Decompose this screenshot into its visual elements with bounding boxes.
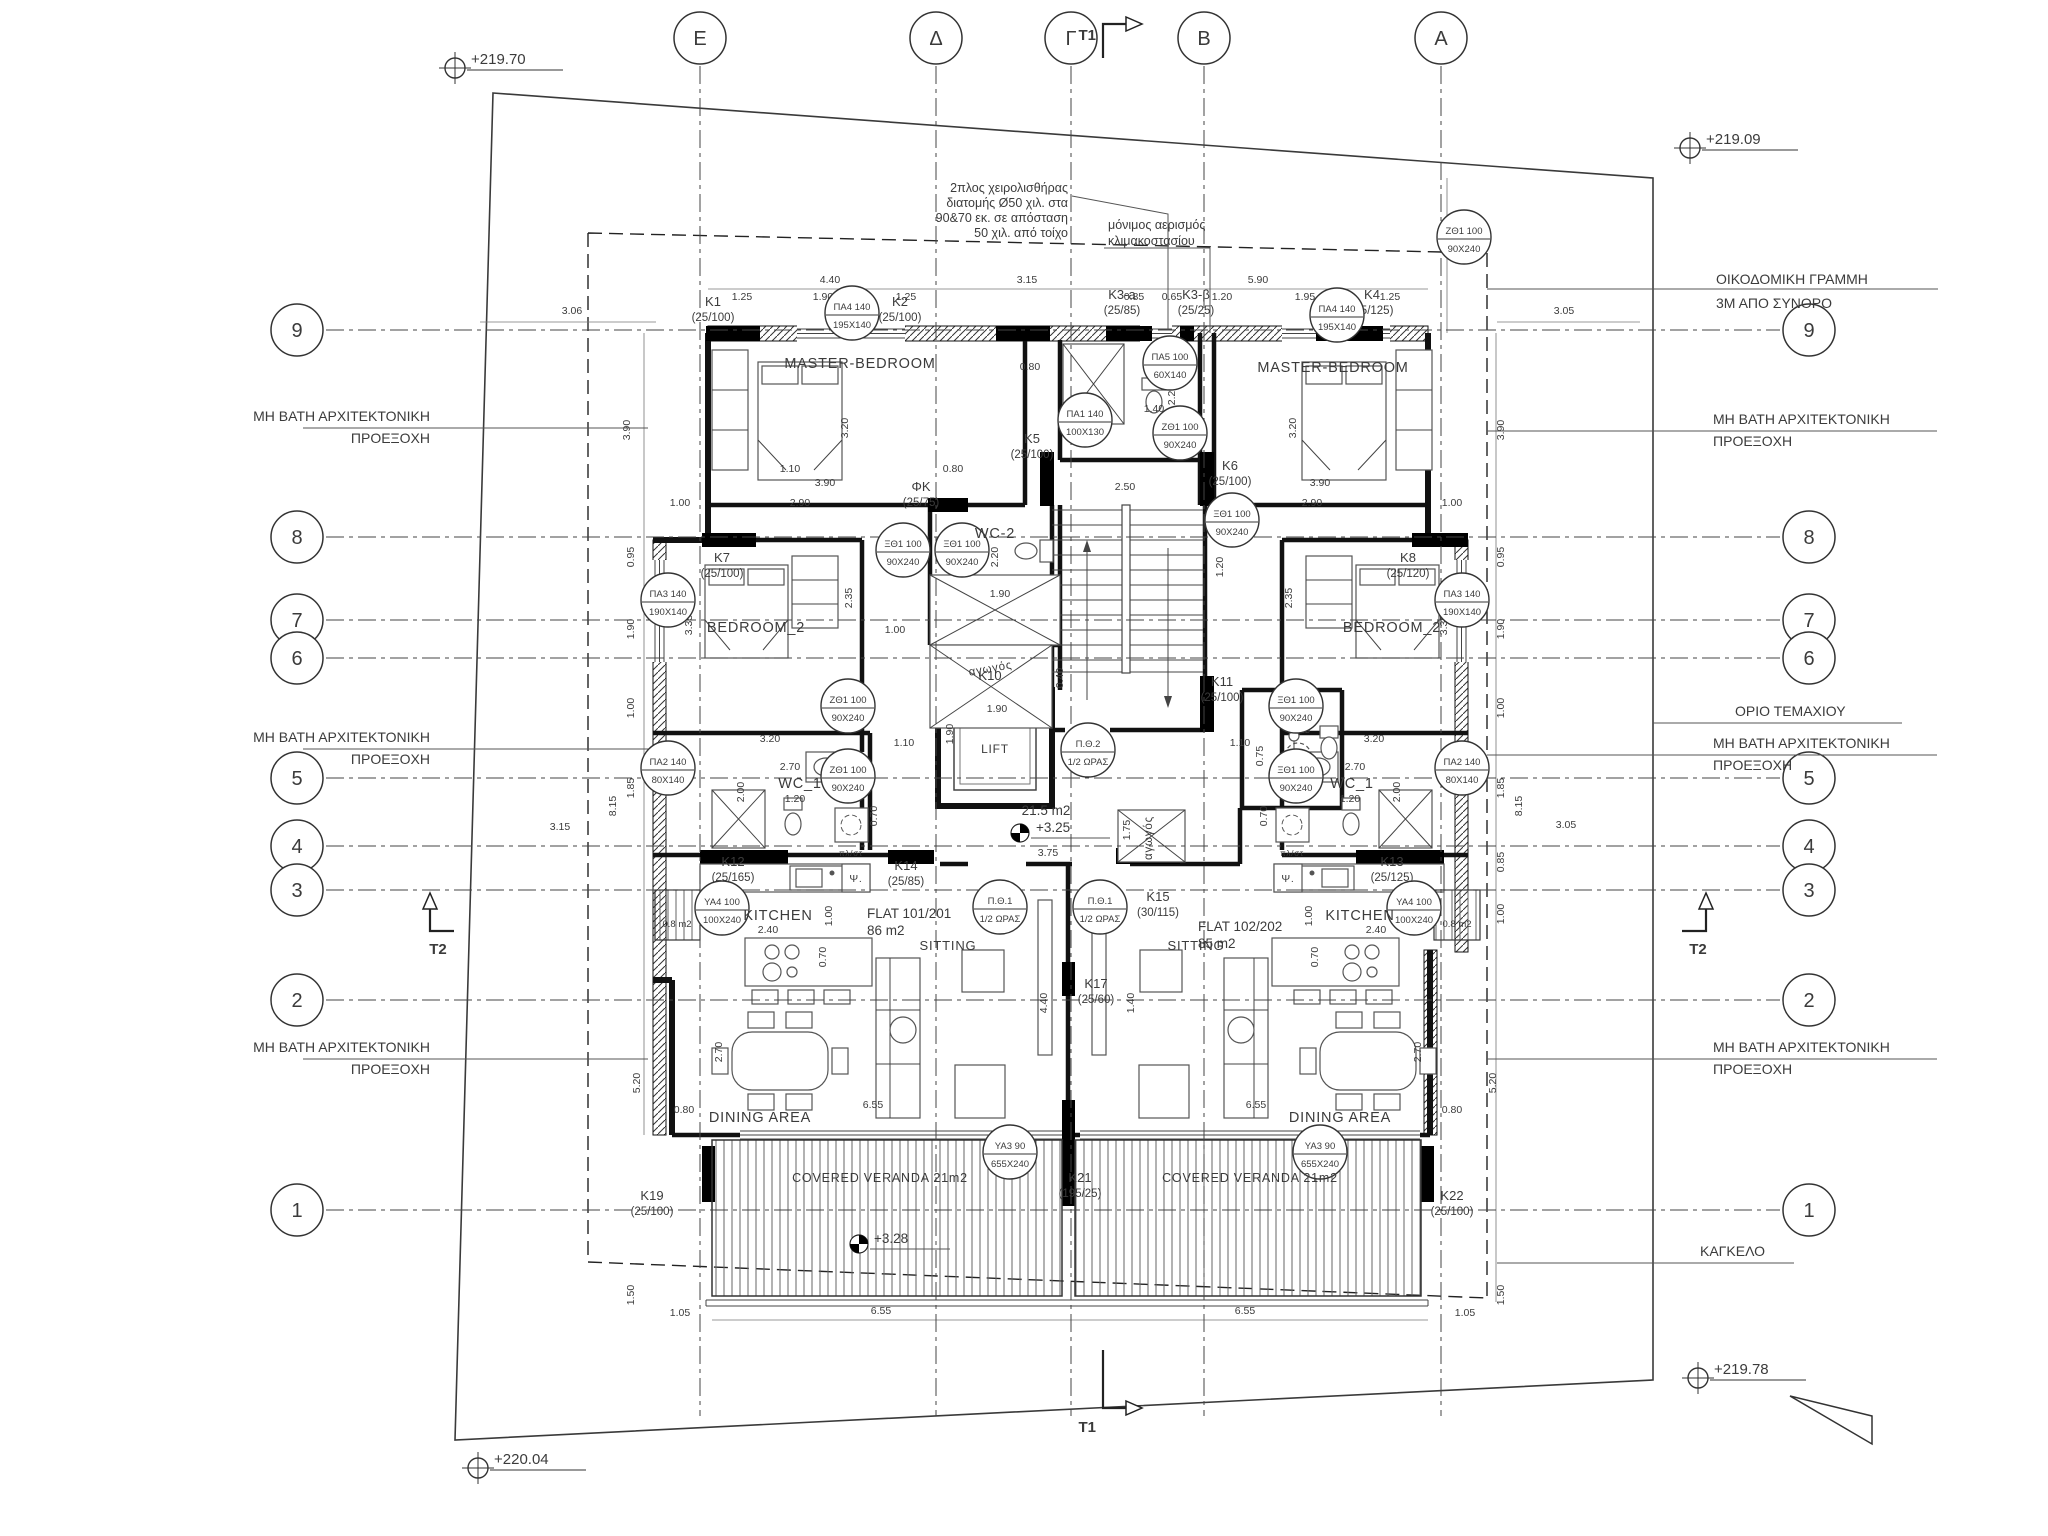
dimension-text: 3.15 xyxy=(1017,274,1038,286)
notes: 2πλος χειρολισθήρας διατομής Ø50 χιλ. στ… xyxy=(936,181,1868,1259)
dimension-text: 0.80 xyxy=(1020,361,1041,373)
dimension-text: 3.90 xyxy=(621,420,633,441)
opening-tag-code: Π.Θ.1 xyxy=(1088,896,1113,907)
opening-tag-circle xyxy=(641,741,695,795)
dimension-text: 1.20 xyxy=(1214,557,1226,578)
room-label: SITTING xyxy=(920,938,977,953)
opening-tag-code: ΞΘ1 100 xyxy=(884,539,921,550)
elevation-value: +220.04 xyxy=(494,1451,549,1468)
column-size: (30/115) xyxy=(1137,907,1179,919)
railing-label: ΚΑΓΚΕΛΟ xyxy=(1700,1243,1765,1259)
opening-tag-code: ΠΑ5 100 xyxy=(1152,352,1189,363)
dimension-text: 3.90 xyxy=(1495,420,1507,441)
column-id: K8 xyxy=(1400,550,1416,565)
opening-tag-circle xyxy=(821,749,875,803)
grid-bubble-label: B xyxy=(1197,28,1210,50)
opening-tag-size: 90X240 xyxy=(832,713,865,724)
dimension-text: 2.35 xyxy=(1283,588,1295,609)
benchmark-cross xyxy=(462,1452,494,1484)
grid-bubble-label: 4 xyxy=(291,836,302,858)
opening-tag-code: ΖΘ1 100 xyxy=(830,765,867,776)
dimension-text: 1.90 xyxy=(990,588,1011,600)
opening-tag-size: 90X240 xyxy=(1280,713,1313,724)
dimension-text: 6.55 xyxy=(1235,1305,1256,1317)
column-id: K21 xyxy=(1068,1170,1091,1185)
section-t1-bottom: T1 xyxy=(1078,1419,1096,1436)
opening-tag-code: ΠΑ3 140 xyxy=(650,589,687,600)
dimension-text: 1.00 xyxy=(885,624,906,636)
living-furniture xyxy=(712,900,1436,1118)
grid-bubble-label: 2 xyxy=(291,990,302,1012)
opening-tag-circle xyxy=(1269,749,1323,803)
room-label: DINING AREA xyxy=(1289,1110,1391,1126)
opening-tag-size: 90X240 xyxy=(1448,244,1481,255)
column-id: K11 xyxy=(1211,674,1233,689)
dimension-text: 0.95 xyxy=(625,547,637,568)
opening-tag-size: 80X140 xyxy=(652,775,685,786)
north-pointer xyxy=(1790,1396,1872,1444)
washer-label: πλ/στ xyxy=(839,849,863,858)
grid-bubble-label: Γ xyxy=(1065,28,1076,50)
dimension-text: 2.70 xyxy=(1412,1042,1424,1063)
dimension-text: 0.95 xyxy=(1495,547,1507,568)
room-label: KITCHEN xyxy=(1325,908,1394,924)
room-label: BEDROOM_2 xyxy=(1343,620,1441,636)
opening-tag-circle xyxy=(1143,336,1197,390)
dimension-text: 3.05 xyxy=(1554,305,1575,317)
opening-tag-code: ΠΑ1 140 xyxy=(1067,409,1104,420)
grid-bubble-label: 7 xyxy=(291,610,302,632)
column-size: (195/25) xyxy=(1059,1188,1102,1200)
grid-bubble-label: Δ xyxy=(929,28,942,50)
opening-tag-size: 90X240 xyxy=(1216,527,1249,538)
dimension-text: 3.20 xyxy=(1287,418,1299,439)
projection-note-line2: ΠΡΟΕΞΟΧΗ xyxy=(351,1061,430,1077)
opening-tag-size: 90X240 xyxy=(1164,440,1197,451)
dimension-text: 3.20 xyxy=(760,733,781,745)
grid-bubble-label: 5 xyxy=(291,768,302,790)
section-t1-top: T1 xyxy=(1078,27,1096,44)
projection-note-line1: ΜΗ ΒΑΤΗ ΑΡΧΙΤΕΚΤΟΝΙΚΗ xyxy=(253,1039,430,1055)
dimension-text: 5.20 xyxy=(1487,1073,1499,1094)
dimension-text: 3.15 xyxy=(550,821,571,833)
room-label: COVERED VERANDA 21m2 xyxy=(1162,1171,1338,1185)
opening-tag-circle xyxy=(821,679,875,733)
grid-bubble-label: 8 xyxy=(1803,527,1814,549)
dimension-text: 6.55 xyxy=(1246,1099,1267,1111)
projection-note-line2: ΠΡΟΕΞΟΧΗ xyxy=(351,751,430,767)
room-label: MASTER-BEDROOM xyxy=(1257,360,1408,376)
room-label: MASTER-BEDROOM xyxy=(784,356,935,372)
vent-note: μόνιμος αερισμός xyxy=(1108,218,1205,232)
dimension-text: 1.00 xyxy=(1495,904,1507,925)
opening-tag-size: 90X240 xyxy=(887,557,920,568)
duct-label: αγωγός xyxy=(1143,816,1155,860)
grid-bubble-label: 1 xyxy=(1803,1200,1814,1222)
column-id: K2 xyxy=(892,294,908,309)
handrail-note: 90&70 εκ. σε απόσταση xyxy=(936,211,1068,225)
room-label: LIFT xyxy=(981,742,1009,756)
dimension-text: 1.00 xyxy=(625,698,637,719)
dimension-text: 1.00 xyxy=(823,906,835,927)
dimension-text: 2.00 xyxy=(735,782,747,803)
opening-tag-code: ΠΑ2 140 xyxy=(1444,757,1481,768)
dimension-text: 0.65 xyxy=(1162,291,1183,303)
opening-tag-size: 1/2 ΩΡΑΣ xyxy=(1080,914,1121,925)
fridge-label: Ψ. xyxy=(1281,873,1294,885)
dimension-text: 3.05 xyxy=(1556,819,1577,831)
dimension-text: 3.20 xyxy=(1364,733,1385,745)
opening-tag-circle xyxy=(1061,723,1115,777)
projection-note-line2: ΠΡΟΕΞΟΧΗ xyxy=(351,430,430,446)
dimension-text: 1.10 xyxy=(1230,737,1251,749)
opening-tag-size: 1/2 ΩΡΑΣ xyxy=(1068,757,1109,768)
shaft-area: 0.8 m2 xyxy=(1442,919,1471,930)
hall-level: +3.25 xyxy=(1036,820,1070,835)
room-label: WC_1 xyxy=(1330,776,1374,792)
opening-tag-size: 190X140 xyxy=(1443,607,1481,618)
opening-tag-circle xyxy=(973,880,1027,934)
opening-tag-size: 80X140 xyxy=(1446,775,1479,786)
washer-label: πλ/στ xyxy=(1280,849,1304,858)
projection-note-line1: ΜΗ ΒΑΤΗ ΑΡΧΙΤΕΚΤΟΝΙΚΗ xyxy=(1713,411,1890,427)
column-size: (25/85) xyxy=(888,876,925,888)
dimension-text: 1.20 xyxy=(785,793,806,805)
grid-bubble-label: 5 xyxy=(1803,768,1814,790)
opening-tag-circle xyxy=(1435,741,1489,795)
opening-tag-size: 100X240 xyxy=(1395,915,1433,926)
floor-plan-drawing: EΔΓBA998877665544332211 +219.70+219.09+2… xyxy=(0,0,2048,1536)
section-t2-left: T2 xyxy=(429,941,447,958)
dimension-text: 1.00 xyxy=(670,497,691,509)
column-size: (25/75) xyxy=(903,497,940,509)
grid-bubble-label: 7 xyxy=(1803,610,1814,632)
building-line-label: 3Μ ΑΠΟ ΣΥΝΟΡΟ xyxy=(1716,295,1832,311)
grid-bubble-label: 3 xyxy=(291,880,302,902)
opening-tag-code: ΞΘ1 100 xyxy=(1213,509,1250,520)
dimension-text: 0.80 xyxy=(674,1104,695,1116)
column-id: K7 xyxy=(714,550,730,565)
shaft-area: 0.8 m2 xyxy=(662,919,691,930)
opening-tag-circle xyxy=(1437,210,1491,264)
dimension-text: 1.25 xyxy=(1380,291,1401,303)
dimension-text: 2.00 xyxy=(1391,782,1403,803)
opening-tag-circle xyxy=(1310,288,1364,342)
opening-tag-code: ΖΘ1 100 xyxy=(830,695,867,706)
grid-bubble-label: 2 xyxy=(1803,990,1814,1012)
dimension-text: 2.70 xyxy=(713,1042,725,1063)
floor-plan-sheet: EΔΓBA998877665544332211 +219.70+219.09+2… xyxy=(0,0,2048,1536)
column-size: (25/100) xyxy=(879,312,922,324)
veranda-level: +3.28 xyxy=(874,1231,908,1246)
room-label: WC-2 xyxy=(975,526,1015,542)
dimension-text: 3.75 xyxy=(1038,847,1059,859)
column-size: (25/85) xyxy=(1104,305,1141,317)
column-size: (25/120) xyxy=(1387,568,1430,580)
dimension-text: 6.55 xyxy=(863,1099,884,1111)
opening-tag-size: 1/2 ΩΡΑΣ xyxy=(980,914,1021,925)
grid-bubble-label: E xyxy=(693,28,706,50)
dimension-text: 1.50 xyxy=(625,1285,637,1306)
grid-bubble-label: 6 xyxy=(291,648,302,670)
dimension-text: 2.90 xyxy=(1302,497,1323,509)
column-id: K6 xyxy=(1222,458,1238,473)
dimension-text: 1.90 xyxy=(944,724,956,745)
opening-tag-code: ΖΘ1 100 xyxy=(1446,226,1483,237)
opening-tag-size: 90X240 xyxy=(1280,783,1313,794)
opening-tag-circle xyxy=(641,573,695,627)
dimension-text: 0.75 xyxy=(1254,746,1266,767)
column-id: K3-a xyxy=(1108,287,1136,302)
column-size: (25/100) xyxy=(1011,449,1054,461)
dimension-text: 1.20 xyxy=(1340,793,1361,805)
building-line-label: ΟΙΚΟΔΟΜΙΚΗ ΓΡΑΜΜΗ xyxy=(1716,271,1868,287)
opening-tag-circle xyxy=(695,881,749,935)
dimension-text: 0.70 xyxy=(817,947,829,968)
column-size: (25/100) xyxy=(1209,476,1252,488)
opening-tag-code: Π.Θ.1 xyxy=(988,896,1013,907)
dimension-text: 0.80 xyxy=(1442,1104,1463,1116)
opening-tag-code: ΞΘ1 100 xyxy=(1277,765,1314,776)
column-id: K3-β xyxy=(1182,287,1210,302)
dimension-text: 1.90 xyxy=(987,703,1008,715)
elevation-value: +219.09 xyxy=(1706,131,1761,148)
benchmark-cross xyxy=(439,52,471,84)
opening-tag-code: Π.Θ.2 xyxy=(1076,739,1101,750)
grid-bubble-label: 4 xyxy=(1803,836,1814,858)
column-size: (25/100) xyxy=(701,568,744,580)
opening-tag-circle xyxy=(1058,393,1112,447)
dimension-text: 8.15 xyxy=(607,796,619,817)
opening-tag-code: ΖΘ1 100 xyxy=(1162,422,1199,433)
room-label: DINING AREA xyxy=(709,1110,811,1126)
opening-tag-size: 655X240 xyxy=(1301,1159,1339,1170)
dimension-text: 1.90 xyxy=(625,619,637,640)
opening-tag-code: ΥΑ3 90 xyxy=(1305,1141,1335,1152)
dimension-text: 2.20 xyxy=(989,547,1001,568)
projection-note-line2: ΠΡΟΕΞΟΧΗ xyxy=(1713,1061,1792,1077)
column-size: (25/100) xyxy=(692,312,735,324)
grid-bubble-label: 9 xyxy=(291,320,302,342)
opening-tag-circle xyxy=(876,523,930,577)
opening-tag-code: ΠΑ2 140 xyxy=(650,757,687,768)
dimension-text: 5.90 xyxy=(1248,274,1269,286)
fridge-label: Ψ. xyxy=(849,873,862,885)
dimension-text: 0.70 xyxy=(1309,947,1321,968)
hall-area: 21.5 m2 xyxy=(1022,803,1071,818)
dimension-text: 1.75 xyxy=(1121,820,1133,841)
opening-tag-circle xyxy=(1153,406,1207,460)
dimension-text: 0.70 xyxy=(868,806,880,827)
dimension-text: 6.55 xyxy=(871,1305,892,1317)
column-size: (25/100) xyxy=(1431,1206,1474,1218)
dimension-text: 5.20 xyxy=(631,1073,643,1094)
opening-tag-size: 195X140 xyxy=(1318,322,1356,333)
dimension-text: 2.70 xyxy=(780,761,801,773)
section-t2-right: T2 xyxy=(1689,941,1707,958)
opening-tag-circle xyxy=(1205,493,1259,547)
column-id: K1 xyxy=(705,294,721,309)
room-label: WC_1 xyxy=(778,776,822,792)
benchmark-cross xyxy=(1682,1362,1714,1394)
opening-tag-size: 90X240 xyxy=(832,783,865,794)
dimension-text: 1.20 xyxy=(1212,291,1233,303)
opening-tag-code: ΥΑ3 90 xyxy=(995,1141,1025,1152)
opening-tag-size: 90X240 xyxy=(946,557,979,568)
opening-tag-code: ΠΑ3 140 xyxy=(1444,589,1481,600)
dimension-text: 8.15 xyxy=(1513,796,1525,817)
projection-note-line1: ΜΗ ΒΑΤΗ ΑΡΧΙΤΕΚΤΟΝΙΚΗ xyxy=(253,729,430,745)
opening-tag-circle xyxy=(1269,679,1323,733)
column-id: K13 xyxy=(1380,854,1403,869)
column-id: K15 xyxy=(1146,889,1169,904)
flat-name: FLAT 102/202 xyxy=(1198,919,1282,934)
column-size: (25/25) xyxy=(1178,305,1215,317)
dimension-text: 0.80 xyxy=(943,463,964,475)
dimension-text: 3.90 xyxy=(815,477,836,489)
handrail-note: 50 χιλ. από τοίχο xyxy=(974,226,1068,240)
dimension-text: 1.10 xyxy=(894,737,915,749)
projection-note-line1: ΜΗ ΒΑΤΗ ΑΡΧΙΤΕΚΤΟΝΙΚΗ xyxy=(253,408,430,424)
dimension-text: 1.85 xyxy=(1495,778,1507,799)
dimension-text: 3.20 xyxy=(839,418,851,439)
opening-tag-code: ΠΑ4 140 xyxy=(1319,304,1356,315)
grid-bubble-label: 1 xyxy=(291,1200,302,1222)
flat-area: 86 m2 xyxy=(867,923,905,938)
opening-tag-circle xyxy=(1387,881,1441,935)
projection-note-line2: ΠΡΟΕΞΟΧΗ xyxy=(1713,757,1792,773)
dimension-text: 0.40 xyxy=(1054,668,1066,689)
column-size: (25/60) xyxy=(1078,994,1115,1006)
opening-tag-circle xyxy=(983,1125,1037,1179)
dimension-text: 4.40 xyxy=(1038,993,1050,1014)
opening-tag-circle xyxy=(825,286,879,340)
column-id: K14 xyxy=(894,858,917,873)
plot-boundary-label: ΟΡΙΟ ΤΕΜΑΧΙΟΥ xyxy=(1735,703,1846,719)
dimension-text: 0.70 xyxy=(1258,806,1270,827)
dimension-text: 1.50 xyxy=(1495,1285,1507,1306)
elevation-value: +219.78 xyxy=(1714,1361,1769,1378)
grid-bubble-label: 9 xyxy=(1803,320,1814,342)
handrail-note: 2πλος χειρολισθήρας xyxy=(950,181,1068,195)
dimension-text: 2.70 xyxy=(1345,761,1366,773)
opening-tag-size: 100X240 xyxy=(703,915,741,926)
column-id: K12 xyxy=(721,854,744,869)
dimension-text: 1.85 xyxy=(625,778,637,799)
opening-tag-code: ΥΑ4 100 xyxy=(704,897,740,908)
opening-tag-code: ΞΘ1 100 xyxy=(1277,695,1314,706)
flat-name: FLAT 101/201 xyxy=(867,906,951,921)
dimension-text: 1.90 xyxy=(1495,619,1507,640)
projection-note-line1: ΜΗ ΒΑΤΗ ΑΡΧΙΤΕΚΤΟΝΙΚΗ xyxy=(1713,1039,1890,1055)
column-id: K19 xyxy=(640,1188,663,1203)
column-id: ΦΚ xyxy=(911,479,930,494)
column-id: K5 xyxy=(1024,431,1040,446)
dimension-text: 1.00 xyxy=(1442,497,1463,509)
room-label: KITCHEN xyxy=(743,908,812,924)
dimension-text: 3.90 xyxy=(1310,477,1331,489)
dimension-text: 2.90 xyxy=(790,497,811,509)
opening-tag-code: ΥΑ4 100 xyxy=(1396,897,1432,908)
dimension-text: 2.35 xyxy=(843,588,855,609)
grid-bubble-label: 8 xyxy=(291,527,302,549)
opening-tag-size: 195X140 xyxy=(833,320,871,331)
dimension-text: 4.40 xyxy=(820,274,841,286)
grid-bubble-label: A xyxy=(1434,28,1448,50)
dimension-text: 1.00 xyxy=(1303,906,1315,927)
dimension-text: 1.00 xyxy=(1495,698,1507,719)
opening-tag-size: 190X140 xyxy=(649,607,687,618)
column-id: K4 xyxy=(1364,287,1380,302)
opening-tag-circle xyxy=(1073,880,1127,934)
grid-bubble-label: 3 xyxy=(1803,880,1814,902)
dimension-text: 0.85 xyxy=(1495,852,1507,873)
dimension-text: 1.05 xyxy=(670,1307,691,1319)
grid-bubble-label: 6 xyxy=(1803,648,1814,670)
elevation-value: +219.70 xyxy=(471,51,526,68)
handrail-note: διατομής Ø50 χιλ. στα xyxy=(946,196,1068,210)
dimension-text: 1.10 xyxy=(780,463,801,475)
opening-tag-circle xyxy=(1435,573,1489,627)
dimension-text: 3.06 xyxy=(562,305,583,317)
vent-note: κλιμακοστασίου xyxy=(1108,234,1195,248)
opening-tag-size: 60X140 xyxy=(1154,370,1187,381)
projection-note-line2: ΠΡΟΕΞΟΧΗ xyxy=(1713,433,1792,449)
opening-tag-code: ΠΑ4 140 xyxy=(834,302,871,313)
stair xyxy=(1052,505,1203,708)
dimension-text: 1.25 xyxy=(732,291,753,303)
dimension-text: 2.40 xyxy=(758,924,779,936)
opening-tag-size: 100X130 xyxy=(1066,427,1104,438)
dimension-text: 1.95 xyxy=(1295,291,1316,303)
flat-area: 85 m2 xyxy=(1198,936,1236,951)
opening-tag-size: 655X240 xyxy=(991,1159,1029,1170)
column-size: (25/100) xyxy=(631,1206,674,1218)
dimension-text: 1.40 xyxy=(1125,993,1137,1014)
column-size: (25/100) xyxy=(1201,692,1244,704)
room-label: BEDROOM_2 xyxy=(707,620,805,636)
projection-note-line1: ΜΗ ΒΑΤΗ ΑΡΧΙΤΕΚΤΟΝΙΚΗ xyxy=(1713,735,1890,751)
room-label: COVERED VERANDA 21m2 xyxy=(792,1171,968,1185)
column-id: K17 xyxy=(1084,976,1107,991)
column-id: K22 xyxy=(1440,1188,1463,1203)
dimension-text: 1.05 xyxy=(1455,1307,1476,1319)
benchmark-cross xyxy=(1674,132,1706,164)
dimension-text: 2.40 xyxy=(1366,924,1387,936)
dimension-text: 2.50 xyxy=(1115,481,1136,493)
